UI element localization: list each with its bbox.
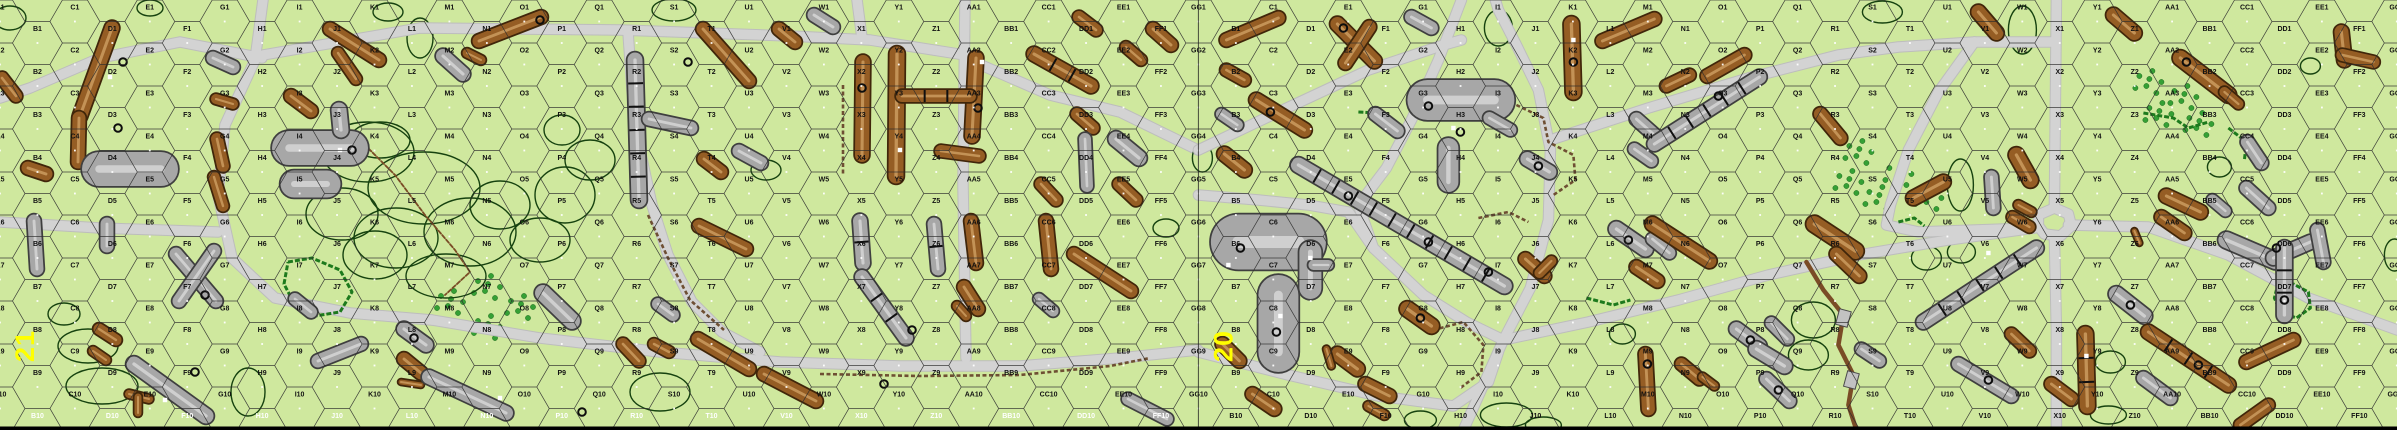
hex-label: J7 — [1532, 284, 1540, 291]
hex-label: FF4 — [2353, 155, 2366, 162]
hex-label: I1 — [1495, 5, 1501, 12]
hex-label: K9 — [1568, 349, 1577, 356]
hex-label: J5 — [333, 198, 341, 205]
hex-label: T4 — [707, 155, 715, 162]
hex-label: DD6 — [2277, 241, 2291, 248]
hex-label: C7 — [1269, 263, 1278, 270]
hex-label: J5 — [1532, 198, 1540, 205]
hex-label: K6 — [370, 220, 379, 227]
hex-label: A4 — [0, 134, 5, 141]
hex-label: E3 — [1344, 91, 1353, 98]
hex-label: P5 — [557, 198, 566, 205]
hex-label: V3 — [1981, 112, 1990, 119]
hex-label: GG4 — [2389, 134, 2397, 141]
hex-label: BB10 — [1002, 413, 1020, 420]
level-square-marker — [163, 398, 167, 402]
hex-label: B3 — [1231, 112, 1240, 119]
hex-label: BB6 — [1004, 241, 1018, 248]
hex-label: D9 — [1306, 370, 1315, 377]
hex-label: EE8 — [2315, 306, 2328, 313]
hex-label: K3 — [1568, 91, 1577, 98]
hex-label: E4 — [146, 134, 155, 141]
hex-label: O7 — [520, 263, 529, 270]
hex-label: C3 — [1269, 91, 1278, 98]
hex-label: V8 — [1981, 327, 1990, 334]
hex-label: H2 — [1456, 69, 1465, 76]
hex-label: O9 — [1718, 349, 1727, 356]
hex-label: DD3 — [1079, 112, 1093, 119]
hex-label: GG5 — [2389, 177, 2397, 184]
hex-label: W9 — [2017, 349, 2028, 356]
hex-label: W8 — [2017, 306, 2028, 313]
hex-label: S5 — [1868, 177, 1877, 184]
hex-label: X3 — [857, 112, 866, 119]
hex-label: X1 — [857, 26, 866, 33]
hex-label: X10 — [855, 413, 868, 420]
hex-label: Q6 — [1793, 220, 1802, 227]
hex-label: W10 — [817, 392, 832, 399]
hex-label: J1 — [1532, 26, 1540, 33]
hex-label: V10 — [1979, 413, 1992, 420]
hex-label: CC5 — [1042, 177, 1056, 184]
board-number-20: 20 — [1208, 330, 1238, 362]
hex-label: U10 — [1941, 392, 1954, 399]
hex-label: F5 — [183, 198, 191, 205]
level-square-marker — [1451, 126, 1455, 130]
hex-label: O1 — [1718, 5, 1727, 12]
hex-label: U2 — [745, 48, 754, 55]
hex-label: T1 — [707, 26, 715, 33]
hex-label: S2 — [1868, 48, 1877, 55]
hex-label: V8 — [782, 327, 791, 334]
hex-label: G3 — [1418, 91, 1427, 98]
hex-label: BB8 — [1004, 327, 1018, 334]
hex-label: CC6 — [1042, 220, 1056, 227]
hex-label: V10 — [780, 413, 793, 420]
hex-label: S8 — [1868, 306, 1877, 313]
hex-label: K3 — [370, 91, 379, 98]
hex-label: S3 — [1868, 91, 1877, 98]
hex-label: M6 — [445, 220, 455, 227]
hex-label: AA3 — [967, 91, 981, 98]
hex-label: R1 — [1831, 26, 1840, 33]
hex-label: BB2 — [1004, 69, 1018, 76]
hex-label: O5 — [520, 177, 529, 184]
woods-trail-board21 — [360, 140, 470, 295]
hex-label: V4 — [1981, 155, 1990, 162]
hex-label: L7 — [1606, 284, 1614, 291]
hex-label: H1 — [1456, 26, 1465, 33]
hex-label: N3 — [482, 112, 491, 119]
hex-label: V2 — [782, 69, 791, 76]
hex-label: T9 — [707, 370, 715, 377]
hex-label: BB9 — [1004, 370, 1018, 377]
hex-label: V7 — [782, 284, 791, 291]
hex-label: I2 — [297, 48, 303, 55]
hex-label: O6 — [520, 220, 529, 227]
hex-label: K2 — [370, 48, 379, 55]
hex-label: R10 — [630, 413, 643, 420]
hex-label: Y3 — [2093, 91, 2102, 98]
hex-label: E2 — [1344, 48, 1353, 55]
hex-label: O5 — [1718, 177, 1727, 184]
hex-label: I8 — [297, 306, 303, 313]
hex-label: FF1 — [1155, 26, 1168, 33]
hex-label: CC5 — [2240, 177, 2254, 184]
hex-label: O2 — [520, 48, 529, 55]
hex-label: GG7 — [2389, 263, 2397, 270]
hex-label: X8 — [2055, 327, 2064, 334]
hex-label: EE10 — [2313, 392, 2330, 399]
hex-label: W2 — [2017, 48, 2028, 55]
hex-label: AA10 — [965, 392, 983, 399]
hex-label: X9 — [2055, 370, 2064, 377]
bridge — [1844, 371, 1860, 390]
hex-label: Z4 — [932, 155, 940, 162]
hex-label: W1 — [819, 5, 830, 12]
hex-label: C2 — [1269, 48, 1278, 55]
hex-label: I3 — [297, 91, 303, 98]
hex-label: I7 — [297, 263, 303, 270]
hex-label: W9 — [819, 349, 830, 356]
hex-label: X8 — [857, 327, 866, 334]
hex-label: CC8 — [1042, 306, 1056, 313]
hex-label: H3 — [1456, 112, 1465, 119]
hex-label: FF10 — [1153, 413, 1169, 420]
hex-label: B9 — [1231, 370, 1240, 377]
hex-label: J3 — [1532, 112, 1540, 119]
hex-label: G4 — [1418, 134, 1427, 141]
hex-label: T5 — [707, 198, 715, 205]
hex-label: AA2 — [2165, 48, 2179, 55]
board-number-21: 21 — [10, 330, 40, 362]
hex-label: N6 — [1681, 241, 1690, 248]
hex-label: Y4 — [2093, 134, 2102, 141]
hex-label: P8 — [1756, 327, 1765, 334]
hex-label: Q4 — [595, 134, 604, 141]
hex-label: O10 — [518, 392, 531, 399]
hex-label: W5 — [2017, 177, 2028, 184]
hex-label: BB3 — [2203, 112, 2217, 119]
hex-label: W8 — [819, 306, 830, 313]
hex-label: GG3 — [2389, 91, 2397, 98]
hex-label: FF5 — [1155, 198, 1168, 205]
hex-label: P2 — [1756, 69, 1765, 76]
hex-label: Q1 — [1793, 5, 1802, 12]
hex-label: AA1 — [967, 5, 981, 12]
hex-label: BB7 — [2203, 284, 2217, 291]
hex-label: G1 — [1418, 5, 1427, 12]
hex-label: C1 — [1269, 5, 1278, 12]
hex-label: H9 — [258, 370, 267, 377]
hex-label: K1 — [1568, 5, 1577, 12]
hex-label: F10 — [1380, 413, 1392, 420]
hex-label: U8 — [1943, 306, 1952, 313]
hex-label: O3 — [520, 91, 529, 98]
hex-label: M10 — [1641, 392, 1655, 399]
hex-label: R7 — [1831, 284, 1840, 291]
hex-label: S10 — [668, 392, 681, 399]
hex-label: Q5 — [1793, 177, 1802, 184]
hex-label: EE7 — [1117, 263, 1130, 270]
hex-label: AA6 — [967, 220, 981, 227]
level-square-marker — [338, 148, 342, 152]
hex-label: R8 — [1831, 327, 1840, 334]
hex-map-svg[interactable]: A1A2A3A4A5A6A7A8A9A10B1B2B3B4B5B6B7B8B9B… — [0, 0, 2397, 430]
hex-label: F1 — [1382, 26, 1390, 33]
hex-label: P1 — [557, 26, 566, 33]
hex-label: Q2 — [595, 48, 604, 55]
hex-label: BB5 — [2203, 198, 2217, 205]
hex-label: E9 — [1344, 349, 1353, 356]
hex-label: R6 — [1831, 241, 1840, 248]
stairwell-ring-marker — [114, 124, 122, 132]
hex-label: D4 — [1306, 155, 1315, 162]
level-square-marker — [2084, 354, 2088, 358]
hex-label: C3 — [70, 91, 79, 98]
hex-label: DD7 — [1079, 284, 1093, 291]
hex-label: H8 — [1456, 327, 1465, 334]
hex-label: L4 — [1606, 155, 1614, 162]
hex-label: F10 — [181, 413, 193, 420]
hex-label: AA8 — [967, 306, 981, 313]
hex-label: N5 — [482, 198, 491, 205]
hex-label: AA4 — [2165, 134, 2179, 141]
hex-label: GG10 — [2387, 392, 2397, 399]
hex-label: C5 — [1269, 177, 1278, 184]
hex-label: K2 — [1568, 48, 1577, 55]
hex-label: W5 — [819, 177, 830, 184]
hex-label: N8 — [482, 327, 491, 334]
hex-label: N7 — [482, 284, 491, 291]
hex-label: Y9 — [895, 349, 904, 356]
hex-label: BB9 — [2203, 370, 2217, 377]
hex-label: AA9 — [2165, 349, 2179, 356]
hex-label: FF2 — [1155, 69, 1168, 76]
hex-label: S6 — [670, 220, 679, 227]
hex-label: L3 — [1606, 112, 1614, 119]
hex-label: T1 — [1906, 26, 1914, 33]
hex-label: Z3 — [932, 112, 940, 119]
hex-label: L2 — [1606, 69, 1614, 76]
hex-label: V4 — [782, 155, 791, 162]
hex-label: FF8 — [1155, 327, 1168, 334]
hex-label: AA3 — [2165, 91, 2179, 98]
hex-label: P5 — [1756, 198, 1765, 205]
hex-label: B4 — [1231, 155, 1240, 162]
hex-label: J7 — [333, 284, 341, 291]
hex-label: H9 — [1456, 370, 1465, 377]
hex-label: CC2 — [2240, 48, 2254, 55]
hex-label: DD8 — [1079, 327, 1093, 334]
hex-label: W7 — [2017, 263, 2028, 270]
hex-label: S10 — [1866, 392, 1879, 399]
hex-label: Z7 — [932, 284, 940, 291]
hex-label: EE5 — [2315, 177, 2328, 184]
hex-label: FF4 — [1155, 155, 1168, 162]
hex-label: CC10 — [1040, 392, 1058, 399]
hex-label: K8 — [1568, 306, 1577, 313]
hex-label: B4 — [33, 155, 42, 162]
hex-label: Z7 — [2131, 284, 2139, 291]
hex-label: L8 — [1606, 327, 1614, 334]
hex-label: J6 — [333, 241, 341, 248]
hex-label: EE6 — [1117, 220, 1130, 227]
hex-label: M4 — [1643, 134, 1653, 141]
hex-label: X2 — [2055, 69, 2064, 76]
hex-label: M10 — [443, 392, 457, 399]
hex-label: Z9 — [2131, 370, 2139, 377]
hex-label: I6 — [1495, 220, 1501, 227]
hex-label: EE4 — [2315, 134, 2328, 141]
hex-label: Z1 — [2131, 26, 2139, 33]
hex-label: B1 — [33, 26, 42, 33]
hex-label: X1 — [2055, 26, 2064, 33]
hex-label: P8 — [557, 327, 566, 334]
hex-label: U10 — [743, 392, 756, 399]
hex-label: F9 — [1382, 370, 1390, 377]
hex-label: W4 — [2017, 134, 2028, 141]
hex-label: W1 — [2017, 5, 2028, 12]
hex-label: T10 — [706, 413, 718, 420]
hex-label: K10 — [368, 392, 381, 399]
hex-label: Z2 — [932, 69, 940, 76]
hex-label: B6 — [33, 241, 42, 248]
hex-label: G10 — [1416, 392, 1429, 399]
hex-label: DD10 — [2275, 413, 2293, 420]
hex-label: K5 — [370, 177, 379, 184]
hex-label: CC1 — [1042, 5, 1056, 12]
hex-label: D7 — [1306, 284, 1315, 291]
hex-label: Q1 — [595, 5, 604, 12]
hex-label: S9 — [670, 349, 679, 356]
hex-label: V1 — [782, 26, 791, 33]
hex-label: E10 — [144, 392, 157, 399]
hex-label: P3 — [557, 112, 566, 119]
hex-label: G8 — [220, 306, 229, 313]
hex-label: S4 — [670, 134, 679, 141]
hex-label: Q3 — [595, 91, 604, 98]
hex-label: L10 — [1604, 413, 1616, 420]
hex-label: R7 — [632, 284, 641, 291]
hex-label: U4 — [1943, 134, 1952, 141]
hex-label: AA7 — [2165, 263, 2179, 270]
hex-label: T2 — [707, 69, 715, 76]
hex-label: U4 — [745, 134, 754, 141]
hex-label: Y3 — [895, 91, 904, 98]
hex-label: AA6 — [2165, 220, 2179, 227]
hex-label: R2 — [632, 69, 641, 76]
hex-label: H5 — [1456, 198, 1465, 205]
hex-label: J9 — [333, 370, 341, 377]
hex-label: U5 — [1943, 177, 1952, 184]
hex-label: O9 — [520, 349, 529, 356]
hex-label: D3 — [1306, 112, 1315, 119]
hex-label: K7 — [370, 263, 379, 270]
hex-label: F5 — [1382, 198, 1390, 205]
hex-wargame-map[interactable]: A1A2A3A4A5A6A7A8A9A10B1B2B3B4B5B6B7B8B9B… — [0, 0, 2397, 430]
hex-label: V2 — [1981, 69, 1990, 76]
hex-label: E10 — [1342, 392, 1355, 399]
hex-label: N4 — [1681, 155, 1690, 162]
hex-label: S8 — [670, 306, 679, 313]
hex-label: B2 — [33, 69, 42, 76]
hex-label: CC4 — [2240, 134, 2254, 141]
hex-label: N2 — [1681, 69, 1690, 76]
hex-label: G5 — [220, 177, 229, 184]
hex-label: S4 — [1868, 134, 1877, 141]
hex-label: DD3 — [2277, 112, 2291, 119]
hex-label: Z8 — [932, 327, 940, 334]
hex-label: F9 — [183, 370, 191, 377]
hex-label: X3 — [2055, 112, 2064, 119]
hex-label: V7 — [1981, 284, 1990, 291]
hex-label: R6 — [632, 241, 641, 248]
hex-label: Y6 — [2093, 220, 2102, 227]
hex-label: Y5 — [2093, 177, 2102, 184]
hex-label: Y7 — [2093, 263, 2102, 270]
hex-label: E8 — [1344, 306, 1353, 313]
hex-label: Z10 — [930, 413, 942, 420]
hex-label: GG6 — [2389, 220, 2397, 227]
hex-label: I5 — [297, 177, 303, 184]
hex-label: G4 — [220, 134, 229, 141]
hex-label: A2 — [0, 48, 5, 55]
hex-label: F6 — [1382, 241, 1390, 248]
hex-label: M6 — [1643, 220, 1653, 227]
hex-label: E3 — [146, 91, 155, 98]
hex-label: Z8 — [2131, 327, 2139, 334]
hex-label: M2 — [445, 48, 455, 55]
hex-label: D1 — [108, 26, 117, 33]
hex-label: L9 — [1606, 370, 1614, 377]
hex-label: X4 — [857, 155, 866, 162]
hex-label: DD7 — [2277, 284, 2291, 291]
hex-label: G2 — [220, 48, 229, 55]
stairwell-ring-marker — [191, 368, 199, 376]
hex-label: P9 — [1756, 370, 1765, 377]
hex-label: B1 — [1231, 26, 1240, 33]
hex-label: M5 — [1643, 177, 1653, 184]
hex-label: DD10 — [1077, 413, 1095, 420]
hex-label: U7 — [745, 263, 754, 270]
hex-label: BB7 — [1004, 284, 1018, 291]
hex-label: AA9 — [967, 349, 981, 356]
hex-label: B5 — [33, 198, 42, 205]
hex-label: EE3 — [2315, 91, 2328, 98]
hex-label: D1 — [1306, 26, 1315, 33]
hex-label: J6 — [1532, 241, 1540, 248]
hex-label: S7 — [670, 263, 679, 270]
hex-label: G9 — [1418, 349, 1427, 356]
hex-label: W3 — [2017, 91, 2028, 98]
hex-label: M1 — [445, 5, 455, 12]
hex-label: U3 — [745, 91, 754, 98]
hex-label: F7 — [1382, 284, 1390, 291]
hex-label: P10 — [1754, 413, 1767, 420]
hex-label: C7 — [70, 263, 79, 270]
hex-label: T7 — [1906, 284, 1914, 291]
hex-label: K4 — [370, 134, 379, 141]
hex-label: CC6 — [2240, 220, 2254, 227]
hex-label: BB4 — [1004, 155, 1018, 162]
hex-label: P6 — [557, 241, 566, 248]
hex-label: M9 — [445, 349, 455, 356]
stairwell-ring-marker — [578, 408, 586, 416]
hex-label: N9 — [1681, 370, 1690, 377]
hex-label: A7 — [0, 263, 5, 270]
hex-label: A9 — [0, 349, 5, 356]
